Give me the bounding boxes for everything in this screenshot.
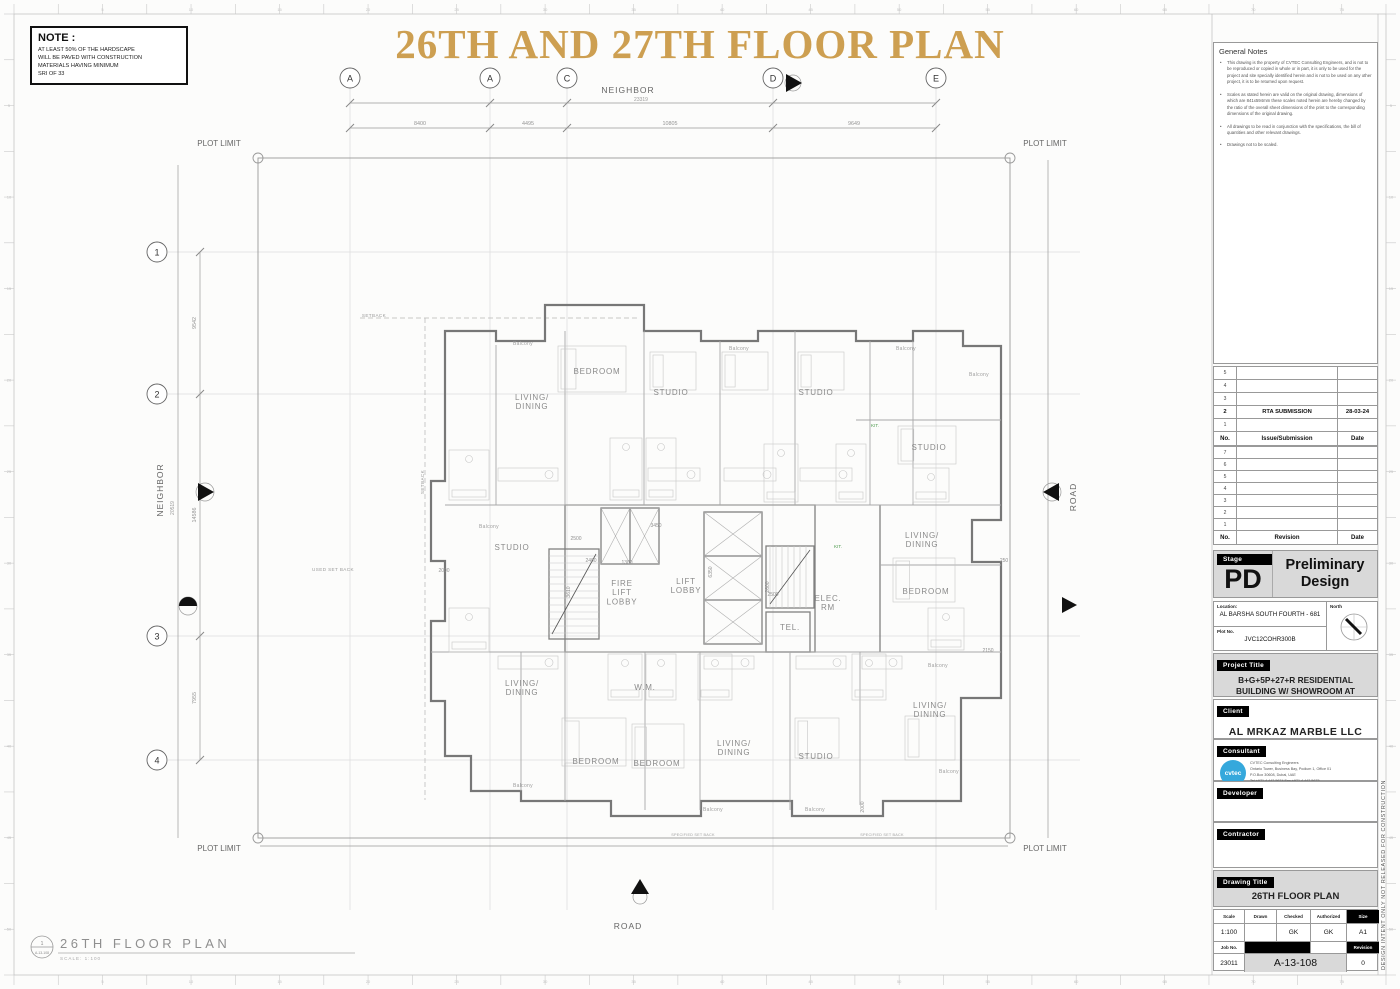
room-label: LIFTLOBBY (671, 577, 702, 595)
ruler-number: 75 (1340, 7, 1345, 12)
setback-label: SETBACK (362, 313, 387, 318)
dimension-text: 2500 (570, 536, 581, 542)
room-label: ELEC.RM (814, 594, 841, 612)
table-row: 3 (1214, 494, 1377, 506)
balcony-label: Balcony (928, 663, 948, 669)
grid-bubble-label: 2 (154, 390, 159, 400)
ruler-number: 35 (631, 979, 636, 984)
caption-title: 26TH FLOOR PLAN (60, 936, 230, 951)
room-label: LIVING/DINING (717, 739, 751, 757)
drawing-info-block: Scale Drawn Checked Authorized Size 1:10… (1213, 909, 1378, 971)
dim-overall-left: 20519 (170, 501, 176, 515)
edge-label-road-right: ROAD (1068, 483, 1078, 512)
plot-limit-label-tr: PLOT LIMIT (1023, 139, 1067, 148)
dimension-text: 7955 (192, 692, 198, 704)
plot-limit-boundary (253, 153, 1015, 843)
setback-lines (360, 318, 640, 800)
ruler-number: 10 (189, 7, 194, 12)
setback-note: SPECIFIED SET BACK (860, 833, 904, 837)
checked-value: GK (1276, 923, 1310, 941)
dimension-text: 2600 (765, 581, 771, 592)
info-spacer (1310, 941, 1346, 953)
room-label: BEDROOM (573, 757, 620, 766)
authorized-value: GK (1310, 923, 1346, 941)
dimension-text: 14586 (192, 508, 198, 523)
ruler-number: 25 (454, 7, 459, 12)
balcony-label: Balcony (513, 341, 533, 347)
checked-label: Checked (1276, 910, 1310, 923)
section-markers (179, 74, 1077, 904)
room-label: FIRELIFTLOBBY (607, 579, 638, 606)
grid-bubble-label: D (770, 74, 777, 84)
ruler-number: 40 (720, 7, 725, 12)
client-block: Client AL MRKAZ MARBLE LLC (1213, 699, 1378, 739)
dimension-text: 10805 (663, 121, 678, 127)
kitchen-label: KIT. (871, 423, 879, 428)
table-row: 3 (1214, 392, 1377, 405)
dimension-text: 4495 (522, 121, 534, 127)
table-row: 4 (1214, 482, 1377, 494)
room-label: STUDIO (911, 443, 946, 452)
ruler-number: 30 (543, 979, 548, 984)
note-box: NOTE : AT LEAST 50% OF THE HARDSCAPE WIL… (30, 26, 188, 85)
dimension-text: 250 (1000, 558, 1009, 564)
dimension-text: 6350 (708, 566, 714, 577)
ruler-number: 65 (1162, 7, 1167, 12)
ruler-number: 30 (1389, 561, 1394, 566)
location-label: Location: (1217, 604, 1323, 609)
project-title-label: Project Title (1217, 660, 1270, 671)
table-row: 5 (1214, 470, 1377, 482)
grid-bubble-label: 3 (154, 632, 159, 642)
ruler-number: 10 (1389, 195, 1394, 200)
client-label: Client (1217, 706, 1249, 717)
general-note-item: Scales as stated herein are valid on the… (1227, 92, 1372, 118)
job-no-value: 23011 (1214, 953, 1244, 972)
ruler-number: 70 (1251, 7, 1256, 12)
ruler-number: 55 (985, 979, 990, 984)
ruler-number: 30 (7, 561, 12, 566)
north-arrow-icon (1330, 609, 1374, 645)
ruler-number: 40 (720, 979, 725, 984)
general-note-item: All drawings to be read in conjunction w… (1227, 124, 1372, 137)
revision-value: 0 (1346, 953, 1379, 972)
edge-label-road-bottom: ROAD (614, 921, 643, 931)
room-label: BEDROOM (574, 367, 621, 376)
ruler-number: 35 (7, 652, 12, 657)
room-label: STUDIO (798, 388, 833, 397)
table-row: 2 (1214, 506, 1377, 518)
plot-limit-label-tl: PLOT LIMIT (197, 139, 241, 148)
general-note-item: Drawings not to be scaled. (1227, 142, 1372, 148)
room-label: BEDROOM (634, 759, 681, 768)
floor-plan-canvas: 5510101515202025253030353540404545505055… (0, 0, 1400, 989)
dimension-text: 8400 (414, 121, 426, 127)
contractor-label: Contractor (1217, 829, 1265, 840)
drawing-title-label: Drawing Title (1217, 877, 1274, 888)
ruler-number: 45 (808, 979, 813, 984)
grid-bubble-label: 1 (154, 248, 159, 258)
dim-overall-top: 23319 (634, 97, 648, 103)
drawing-title-block: Drawing Title 26TH FLOOR PLAN (1213, 870, 1378, 907)
setback-label: SETBACK (420, 469, 425, 494)
ruler-number: 15 (7, 286, 12, 291)
balcony-label: Balcony (703, 807, 723, 813)
table-header: No.Issue/SubmissionDate (1214, 431, 1377, 445)
consultant-label: Consultant (1217, 746, 1266, 757)
ruler-number: 50 (897, 979, 902, 984)
plan-caption: 1 A-13-108 26TH FLOOR PLAN SCALE: 1:100 (31, 936, 355, 961)
room-label: LIVING/DINING (515, 393, 549, 411)
drawn-label: Drawn (1244, 910, 1276, 923)
balcony-label: Balcony (729, 346, 749, 352)
grid-bubble-label: E (933, 74, 939, 84)
room-label: W.M. (634, 683, 655, 692)
release-status-strip: DESIGN INTENT ONLY NOT RELEASED FOR CONS… (1381, 640, 1397, 970)
table-row: 1 (1214, 518, 1377, 530)
revision-table: 7654321No.RevisionDate (1213, 446, 1378, 545)
location-block: Location: AL BARSHA SOUTH FOURTH - 681 P… (1213, 601, 1378, 651)
caption-scale: SCALE: 1:100 (60, 956, 101, 961)
room-label: LIVING/DINING (913, 701, 947, 719)
room-label: STUDIO (798, 752, 833, 761)
location-value: AL BARSHA SOUTH FOURTH - 681 (1217, 611, 1323, 618)
ruler-number: 20 (366, 979, 371, 984)
grid-bubble-label: C (564, 74, 571, 84)
ruler-number: 30 (543, 7, 548, 12)
note-line-2: WILL BE PAVED WITH CONSTRUCTION (38, 54, 180, 62)
grid-bubble-label: A (347, 74, 353, 84)
grid-bubble-label: 4 (154, 756, 159, 766)
ruler-number: 25 (454, 979, 459, 984)
room-label: STUDIO (494, 543, 529, 552)
ruler-number: 45 (7, 835, 12, 840)
revision-label: Revision (1346, 941, 1379, 953)
note-line-4: SRI OF 33 (38, 70, 180, 78)
kitchen-label: KIT. (834, 544, 842, 549)
plot-no-value: JVC12COHR300B (1217, 636, 1323, 643)
drawing-sheet: 5510101515202025253030353540404545505055… (0, 0, 1400, 989)
general-notes: General Notes This drawing is the proper… (1213, 42, 1378, 364)
balcony-label: Balcony (896, 346, 916, 352)
stage-block: Stage PD Preliminary Design (1213, 550, 1378, 598)
dimension-text: 2400 (585, 558, 596, 564)
stage-name: Preliminary Design (1273, 551, 1377, 597)
setback-note: SPECIFIED SET BACK (671, 833, 715, 837)
dimension-text: 9542 (192, 317, 198, 329)
plot-no-label: Plot No. (1217, 629, 1323, 634)
contractor-block: Contractor (1213, 822, 1378, 868)
room-label: STUDIO (653, 388, 688, 397)
ruler-number: 70 (1251, 979, 1256, 984)
scale-label: Scale (1214, 910, 1244, 923)
ruler-number: 20 (366, 7, 371, 12)
ruler-number: 10 (7, 195, 12, 200)
grid-bubble-label: A (487, 74, 493, 84)
dimension-lines (178, 103, 1048, 846)
plot-limit-label-bl: PLOT LIMIT (197, 844, 241, 853)
room-label: BEDROOM (903, 587, 950, 596)
note-line-1: AT LEAST 50% OF THE HARDSCAPE (38, 46, 180, 54)
table-header: No.RevisionDate (1214, 530, 1377, 544)
project-title-block: Project Title B+G+5P+27+R RESIDENTIAL BU… (1213, 653, 1378, 697)
balcony-label: Balcony (969, 372, 989, 378)
dimension-text: 1300 (621, 560, 632, 566)
ruler-number: 25 (7, 469, 12, 474)
balcony-label: Balcony (513, 783, 533, 789)
drawing-no-label (1244, 941, 1310, 953)
size-value: A1 (1346, 923, 1379, 941)
plan-labels: BEDROOMSTUDIOSTUDIOLIVING/DININGSTUDIOST… (192, 121, 1008, 837)
developer-block: Developer (1213, 781, 1378, 822)
room-label: TEL. (780, 623, 800, 632)
table-row: 4 (1214, 379, 1377, 392)
ruler-number: 45 (808, 7, 813, 12)
ruler-number: 15 (277, 979, 282, 984)
table-row: 1 (1214, 418, 1377, 431)
authorized-label: Authorized (1310, 910, 1346, 923)
setback-label: USED SET BACK (312, 567, 354, 572)
table-row: 2RTA SUBMISSION28-03-24 (1214, 405, 1377, 418)
note-line-3: MATERIALS HAVING MINIMUM (38, 62, 180, 70)
ruler-number: 10 (189, 979, 194, 984)
ruler-number: 20 (1389, 378, 1394, 383)
table-row: 5 (1214, 367, 1377, 379)
drawing-no-value: A-13-108 (1244, 953, 1346, 972)
balcony-label: Balcony (939, 769, 959, 775)
dimension-text: 2150 (982, 648, 993, 654)
submission-table: 5432RTA SUBMISSION28-03-241No.Issue/Subm… (1213, 366, 1378, 446)
general-notes-title: General Notes (1219, 47, 1372, 56)
room-label: LIVING/DINING (905, 531, 939, 549)
title-block: General Notes This drawing is the proper… (1213, 42, 1378, 971)
ruler-number: 5 (101, 7, 104, 12)
general-note-item: This drawing is the property of CVTEC Co… (1227, 60, 1372, 86)
scale-value: 1:100 (1214, 923, 1244, 941)
job-no-label: Job No. (1214, 941, 1244, 953)
ruler-number: 60 (1074, 7, 1079, 12)
table-row: 7 (1214, 447, 1377, 458)
client-value: AL MRKAZ MARBLE LLC (1214, 726, 1377, 738)
note-title: NOTE : (38, 32, 180, 44)
edge-label-neighbor-left: NEIGHBOR (155, 463, 165, 516)
dimension-text: 3450 (650, 523, 661, 529)
drawn-value (1244, 923, 1276, 941)
ruler-number: 15 (1389, 286, 1394, 291)
edge-label-neighbor-top: NEIGHBOR (601, 85, 654, 95)
ruler-number: 50 (7, 927, 12, 932)
consultant-block: Consultant cvtec CVTEC Consulting Engine… (1213, 739, 1378, 781)
ruler-number: 75 (1340, 979, 1345, 984)
balcony-label: Balcony (805, 807, 825, 813)
plot-limit-label-br: PLOT LIMIT (1023, 844, 1067, 853)
ruler-number: 65 (1162, 979, 1167, 984)
dimension-text: 2000 (438, 568, 449, 574)
room-label: LIVING/DINING (505, 679, 539, 697)
stage-code: PD (1214, 565, 1272, 595)
table-row: 6 (1214, 458, 1377, 470)
developer-label: Developer (1217, 788, 1263, 799)
ruler-number: 5 (101, 979, 104, 984)
ruler-number: 40 (7, 744, 12, 749)
drawing-title-value: 26TH FLOOR PLAN (1214, 891, 1377, 902)
grid-lines: AACDE1234 (147, 68, 1080, 910)
drawing-banner-title: 26TH AND 27TH FLOOR PLAN (270, 20, 1130, 68)
dimension-text: 2000 (860, 801, 866, 812)
ruler-number: 50 (897, 7, 902, 12)
ruler-number: 60 (1074, 979, 1079, 984)
dimension-text: 9649 (848, 121, 860, 127)
caption-ref-bottom: A-13-108 (35, 951, 49, 955)
ruler-number: 15 (277, 7, 282, 12)
ruler-number: 25 (1389, 469, 1394, 474)
dimension-text: 3610 (566, 586, 572, 597)
size-label: Size (1346, 910, 1379, 923)
caption-ref-top: 1 (41, 941, 44, 947)
ruler-number: 55 (985, 7, 990, 12)
building-core (549, 505, 880, 652)
ruler-number: 35 (631, 7, 636, 12)
ruler-number: 20 (7, 378, 12, 383)
dimension-text: 2500 (767, 592, 778, 598)
balcony-label: Balcony (479, 524, 499, 530)
